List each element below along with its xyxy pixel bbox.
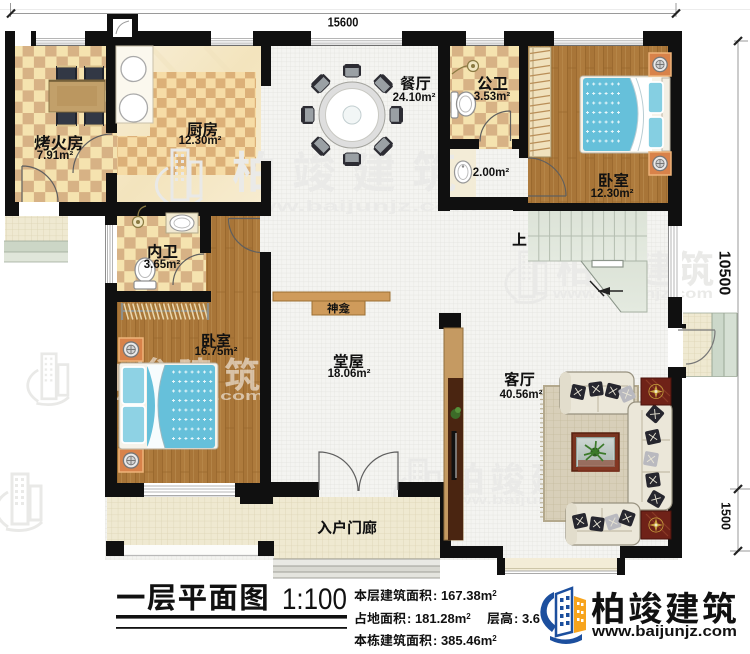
svg-text:12.30m²: 12.30m² <box>591 188 634 200</box>
svg-text:www.baijunjz.com: www.baijunjz.com <box>591 624 737 640</box>
svg-text:1:100: 1:100 <box>282 582 347 615</box>
svg-text:: 3.6: : 3.6 <box>514 611 540 626</box>
svg-text:3.53m²: 3.53m² <box>474 91 511 103</box>
svg-text:3.65m²: 3.65m² <box>144 259 181 271</box>
svg-text:: 385.46m2: : 385.46m2 <box>433 633 497 648</box>
svg-text:16.75m²: 16.75m² <box>195 346 238 358</box>
svg-text:15600: 15600 <box>328 15 359 30</box>
svg-text:24.10m²: 24.10m² <box>393 92 436 104</box>
svg-text:: 167.38m2: : 167.38m2 <box>433 588 497 603</box>
svg-text:2.00m²: 2.00m² <box>473 167 510 179</box>
svg-text:10500: 10500 <box>716 251 733 296</box>
svg-text:7.91m²: 7.91m² <box>37 150 74 162</box>
svg-text:12.30m²: 12.30m² <box>179 135 222 147</box>
svg-text:40.56m²: 40.56m² <box>500 389 543 401</box>
svg-text:18.06m²: 18.06m² <box>328 368 371 380</box>
svg-text:1500: 1500 <box>719 502 733 530</box>
svg-text:: 181.28m2: : 181.28m2 <box>407 611 471 626</box>
